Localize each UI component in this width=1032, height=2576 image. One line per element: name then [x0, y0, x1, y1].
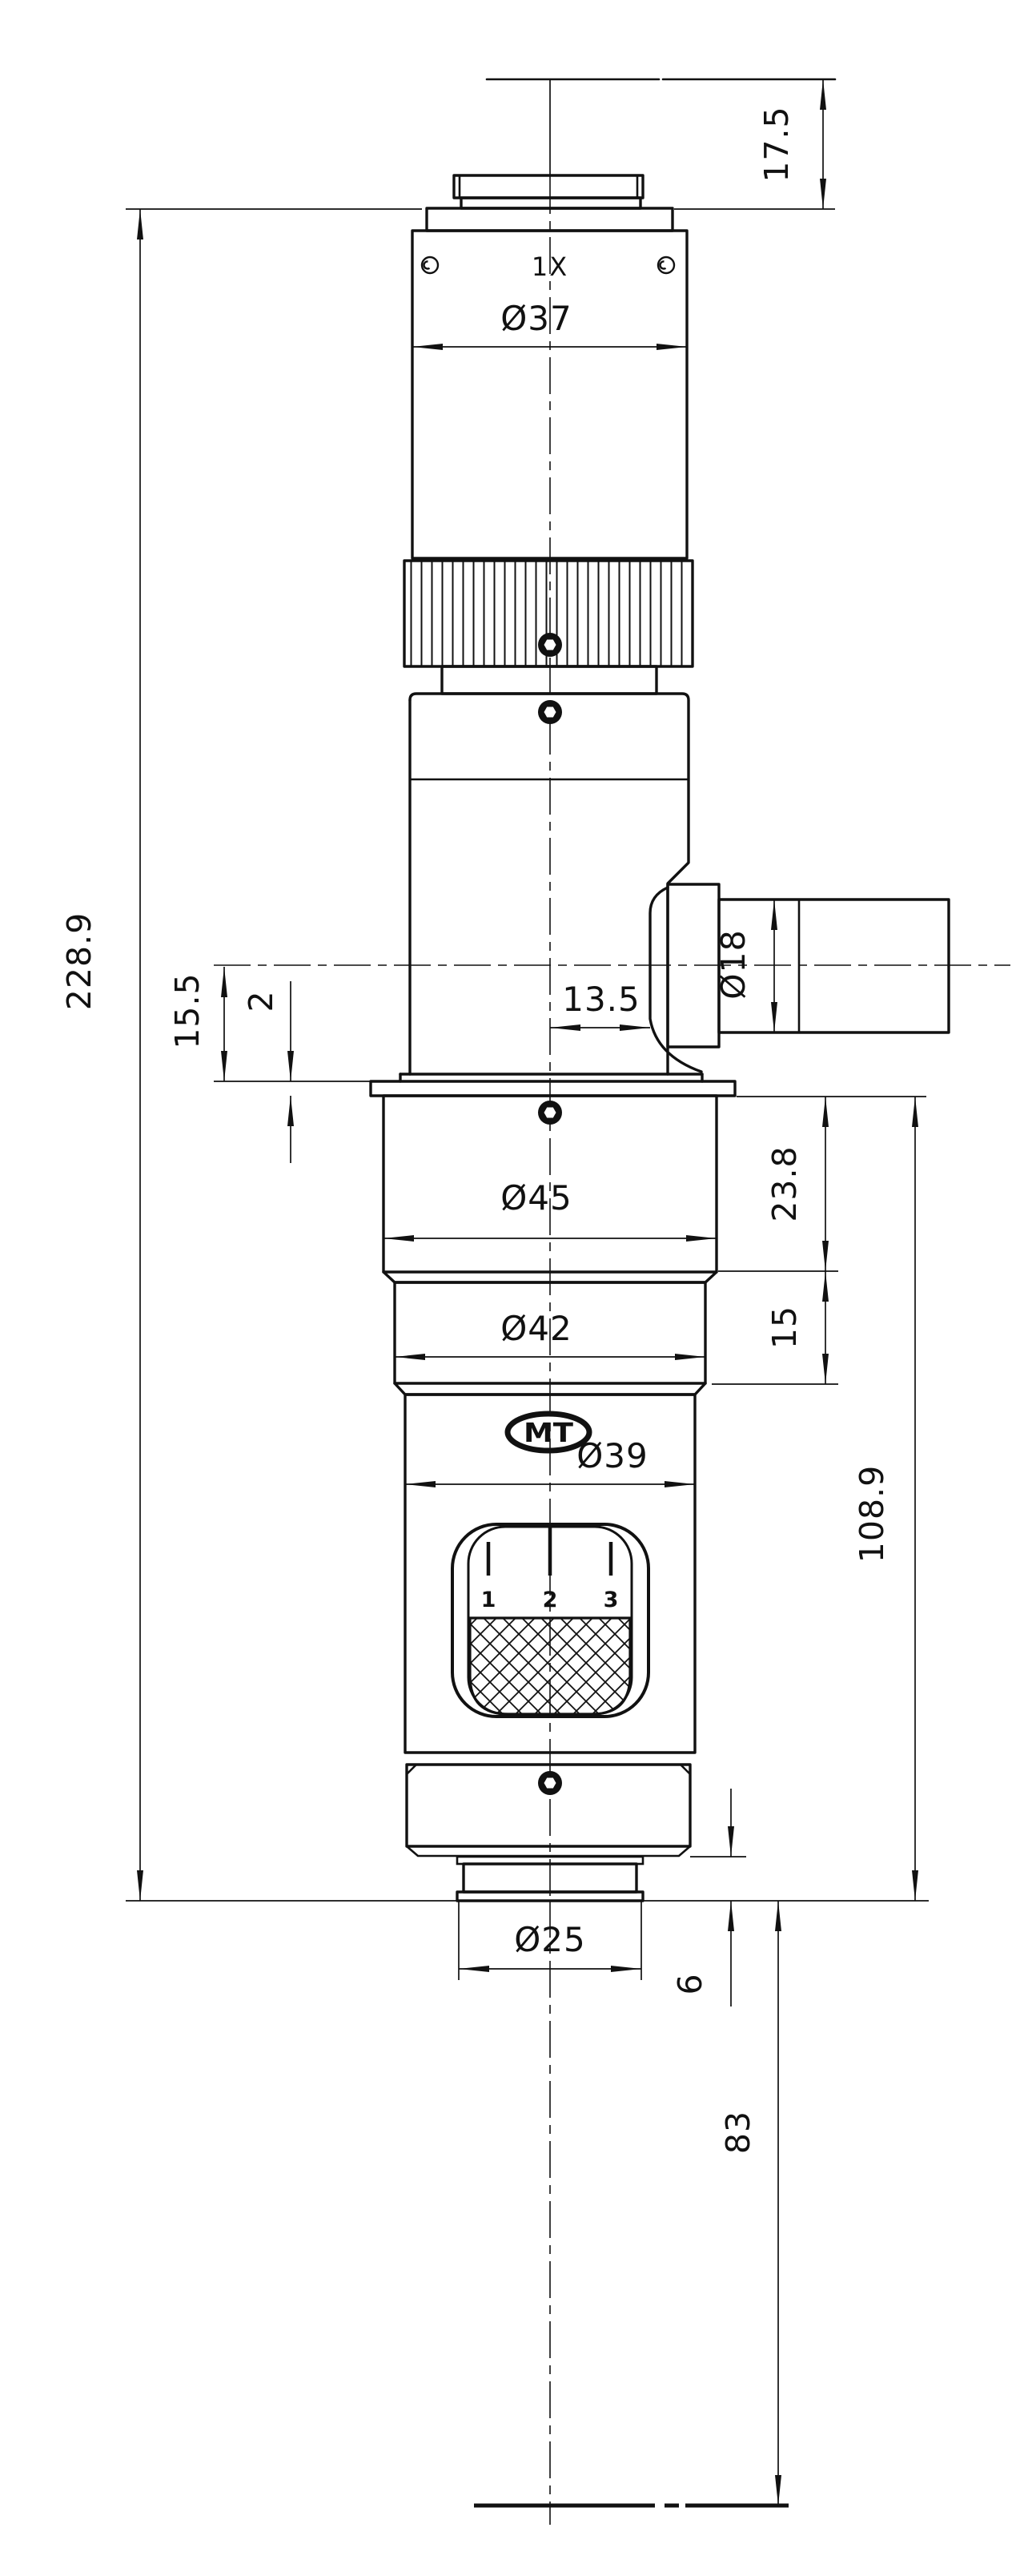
- lb-chamfer-tr: [681, 1765, 690, 1774]
- dim-overall-height-label: 228.9: [60, 912, 98, 1010]
- upper-tube-with-port: [410, 694, 949, 1074]
- scale-mark-3: 3: [604, 1588, 619, 1612]
- set-screw-left-icon: [422, 257, 438, 273]
- dimension-phi18: Ø18: [714, 900, 774, 1032]
- dimension-6: 6: [671, 1789, 731, 2006]
- lower-mount: [407, 1765, 690, 1901]
- dim-mid-barrel-diameter-label: Ø42: [500, 1309, 572, 1348]
- dimension-13-5: 13.5: [550, 980, 650, 1028]
- dim-tip-step-height-label: 6: [671, 1973, 709, 1994]
- dimension-15: 15: [765, 1271, 825, 1384]
- cmount-ring: [461, 198, 640, 208]
- set-screw-right-icon: [658, 257, 674, 273]
- dimension-phi37: Ø37: [412, 299, 687, 347]
- lb-chamfer-bottom: [407, 1846, 690, 1856]
- dim-port-axis-to-flange-label: 15.5: [168, 972, 207, 1049]
- scale-mark-1: 1: [481, 1588, 496, 1612]
- lb-chamfer-tl: [407, 1765, 416, 1774]
- neck-ring: [442, 666, 657, 694]
- port-boss-fillet: [650, 888, 701, 1072]
- zoom-scale-window: 1 2 3: [452, 1524, 649, 1717]
- dimension-15-5: 15.5: [168, 967, 224, 1081]
- dim-working-distance-label: 83: [719, 2111, 757, 2154]
- upper-tube-right-profile: [410, 694, 689, 1074]
- dim-upper-barrel-height-label: 23.8: [765, 1145, 804, 1222]
- magnification-label: 1X: [532, 252, 568, 282]
- dimension-17-5: 17.5: [757, 79, 823, 209]
- knurl-screw-icon: [538, 633, 562, 657]
- dim-flange-to-tip-label: 108.9: [853, 1465, 891, 1563]
- mount-flange: [371, 1074, 735, 1096]
- cmount-thread-cylinder: [454, 175, 643, 198]
- barrel-screw-icon: [538, 1101, 562, 1125]
- dimension-108-9: 108.9: [853, 1097, 915, 1901]
- dim-upper-barrel-diameter-label: Ø45: [500, 1178, 572, 1218]
- dim-mid-barrel-height-label: 15: [765, 1306, 804, 1349]
- dim-zoom-body-diameter-label: Ø39: [576, 1436, 649, 1475]
- tip-end-lip: [457, 1892, 643, 1901]
- dimension-2: 2: [242, 981, 291, 1163]
- centerlines: [214, 79, 1010, 2525]
- dimension-228-9: 228.9: [60, 209, 140, 1901]
- dim-center-to-port-face-label: 13.5: [562, 980, 640, 1019]
- dim-tip-diameter-label: Ø25: [514, 1920, 586, 1959]
- tube-screw-icon: [538, 700, 562, 724]
- microscope-lens-dimension-drawing: 1X MT 1: [0, 0, 1032, 2576]
- dimension-83: 83: [719, 1901, 778, 2506]
- zoom-grip-crosshatch: [470, 1618, 630, 1714]
- dim-top-adapter-height-label: 17.5: [757, 106, 796, 182]
- lower-screw-icon: [538, 1771, 562, 1795]
- flange-plate: [371, 1081, 735, 1096]
- dimension-23-8: 23.8: [765, 1097, 825, 1271]
- dim-port-diameter-label: Ø18: [714, 929, 753, 999]
- logo-text: MT: [524, 1417, 574, 1448]
- dim-flange-thickness-label: 2: [242, 990, 280, 1012]
- focus-knurled-ring: [404, 561, 693, 694]
- dim-body-diameter-label: Ø37: [500, 299, 572, 338]
- port-barrel-phi18: [719, 900, 949, 1032]
- scale-mark-2: 2: [543, 1588, 558, 1612]
- engineering-drawing-page: 1X MT 1: [0, 0, 1032, 2576]
